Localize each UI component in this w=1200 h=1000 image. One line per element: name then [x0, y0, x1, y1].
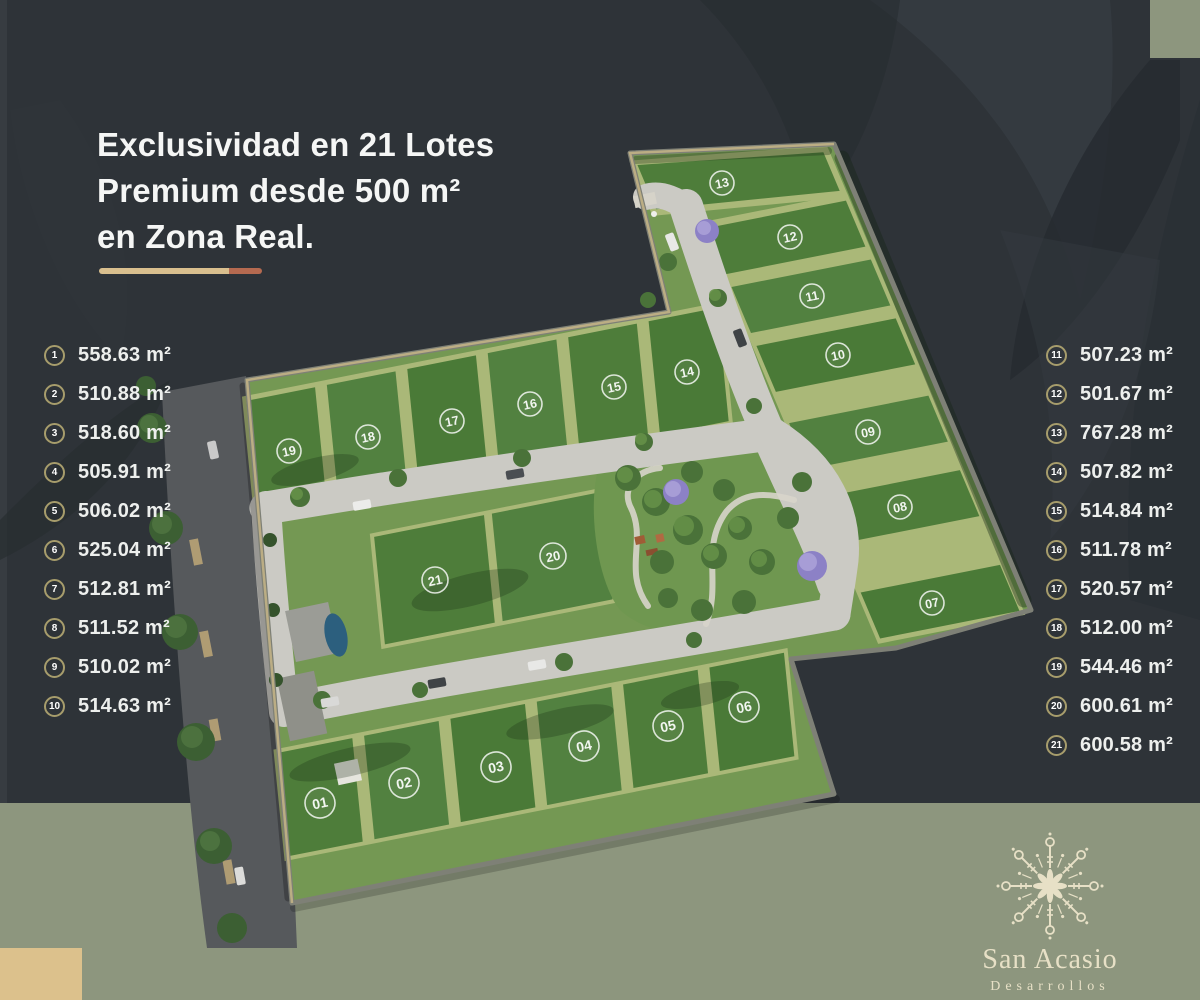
lot-number-badge: 3: [44, 423, 65, 444]
lot-number-badge: 7: [44, 579, 65, 600]
lot-list-item: 9510.02 m²: [44, 656, 171, 678]
lot-list-item: 4505.91 m²: [44, 461, 171, 483]
brand-logo: San Acasio Desarrollos: [950, 830, 1150, 995]
lot-area-label: 510.88 m²: [78, 383, 171, 406]
lot-area-label: 505.91 m²: [78, 461, 171, 484]
accent-square-topright: [1150, 0, 1200, 58]
lot-list-item: 12501.67 m²: [1046, 383, 1173, 405]
brand-subtitle: Desarrollos: [950, 979, 1150, 995]
lot-list-item: 11507.23 m²: [1046, 344, 1173, 366]
lot-list-item: 5506.02 m²: [44, 500, 171, 522]
lot-area-label: 507.82 m²: [1080, 461, 1173, 484]
lot-list-item: 1558.63 m²: [44, 344, 171, 366]
map-lot-label: 20: [544, 548, 561, 566]
lot-number-badge: 21: [1046, 735, 1067, 756]
lot-number-badge: 10: [44, 696, 65, 717]
map-lot-label: 07: [924, 595, 941, 612]
lot-area-label: 501.67 m²: [1080, 383, 1173, 406]
lot-list-item: 19544.46 m²: [1046, 656, 1173, 678]
lot-number-badge: 6: [44, 540, 65, 561]
lot-area-label: 600.61 m²: [1080, 695, 1173, 718]
map-lot-label: 16: [522, 396, 539, 413]
lot-list-item: 20600.61 m²: [1046, 695, 1173, 717]
lot-area-label: 512.81 m²: [78, 578, 171, 601]
map-lot-label: 13: [714, 175, 731, 192]
headline-line-1: Exclusividad en 21 Lotes: [97, 122, 494, 168]
lot-area-label: 558.63 m²: [78, 344, 171, 367]
lot-area-label: 514.63 m²: [78, 695, 171, 718]
lot-area-label: 544.46 m²: [1080, 656, 1173, 679]
lot-number-badge: 1: [44, 345, 65, 366]
accent-square-bottomleft: [0, 948, 82, 1000]
lot-number-badge: 9: [44, 657, 65, 678]
brand-emblem-icon: [994, 830, 1106, 942]
lot-number-badge: 5: [44, 501, 65, 522]
lot-area-label: 520.57 m²: [1080, 578, 1173, 601]
lot-list-item: 8511.52 m²: [44, 617, 171, 639]
lot-area-label: 525.04 m²: [78, 539, 171, 562]
map-lot-label: 18: [360, 429, 377, 446]
lot-area-label: 600.58 m²: [1080, 734, 1173, 757]
flyer-canvas: 01 02 03 04 05 06 07 08 09 10 11 12 13 1…: [0, 0, 1200, 1000]
lot-number-badge: 8: [44, 618, 65, 639]
lot-areas-list-left: 1558.63 m² 2510.88 m² 3518.60 m² 4505.91…: [44, 344, 171, 734]
lot-number-badge: 12: [1046, 384, 1067, 405]
lot-list-item: 10514.63 m²: [44, 695, 171, 717]
map-lot-label: 09: [860, 424, 877, 441]
lot-number-badge: 13: [1046, 423, 1067, 444]
lot-number-badge: 2: [44, 384, 65, 405]
lot-list-item: 16511.78 m²: [1046, 539, 1173, 561]
lot-area-label: 511.78 m²: [1080, 539, 1172, 562]
map-lot-label: 19: [281, 443, 298, 460]
lot-area-label: 506.02 m²: [78, 500, 171, 523]
lot-number-badge: 20: [1046, 696, 1067, 717]
lot-area-label: 767.28 m²: [1080, 422, 1173, 445]
lot-number-badge: 15: [1046, 501, 1067, 522]
map-lot-label: 15: [606, 379, 623, 396]
map-lot-label: 08: [892, 499, 909, 516]
lot-areas-list-right: 11507.23 m² 12501.67 m² 13767.28 m² 1450…: [1046, 344, 1173, 773]
lot-number-badge: 19: [1046, 657, 1067, 678]
lot-list-item: 15514.84 m²: [1046, 500, 1173, 522]
headline: Exclusividad en 21 Lotes Premium desde 5…: [97, 122, 494, 260]
lot-area-label: 514.84 m²: [1080, 500, 1173, 523]
divider-terracotta-segment: [229, 268, 262, 274]
map-lot-label: 17: [444, 413, 461, 430]
lot-list-item: 2510.88 m²: [44, 383, 171, 405]
headline-line-3: en Zona Real.: [97, 214, 494, 260]
lot-number-badge: 16: [1046, 540, 1067, 561]
map-lot-label: 10: [830, 347, 847, 364]
lot-list-item: 13767.28 m²: [1046, 422, 1173, 444]
lot-list-item: 18512.00 m²: [1046, 617, 1173, 639]
lot-area-label: 518.60 m²: [78, 422, 171, 445]
headline-divider: [99, 268, 262, 274]
lot-list-item: 21600.58 m²: [1046, 734, 1173, 756]
lot-list-item: 3518.60 m²: [44, 422, 171, 444]
lot-area-label: 512.00 m²: [1080, 617, 1173, 640]
brand-name: San Acasio: [950, 944, 1150, 976]
lot-number-badge: 4: [44, 462, 65, 483]
lot-number-badge: 18: [1046, 618, 1067, 639]
lot-list-item: 17520.57 m²: [1046, 578, 1173, 600]
lot-list-item: 14507.82 m²: [1046, 461, 1173, 483]
lot-number-badge: 17: [1046, 579, 1067, 600]
lot-area-label: 511.52 m²: [78, 617, 170, 640]
lot-number-badge: 11: [1046, 345, 1067, 366]
lot-area-label: 507.23 m²: [1080, 344, 1173, 367]
lot-number-badge: 14: [1046, 462, 1067, 483]
lot-list-item: 6525.04 m²: [44, 539, 171, 561]
lot-list-item: 7512.81 m²: [44, 578, 171, 600]
lot-area-label: 510.02 m²: [78, 656, 171, 679]
map-lot-label: 12: [782, 229, 799, 246]
map-lot-label: 14: [679, 364, 696, 381]
headline-line-2: Premium desde 500 m²: [97, 168, 494, 214]
map-lot-label: 21: [426, 572, 443, 590]
divider-tan-segment: [99, 268, 229, 274]
